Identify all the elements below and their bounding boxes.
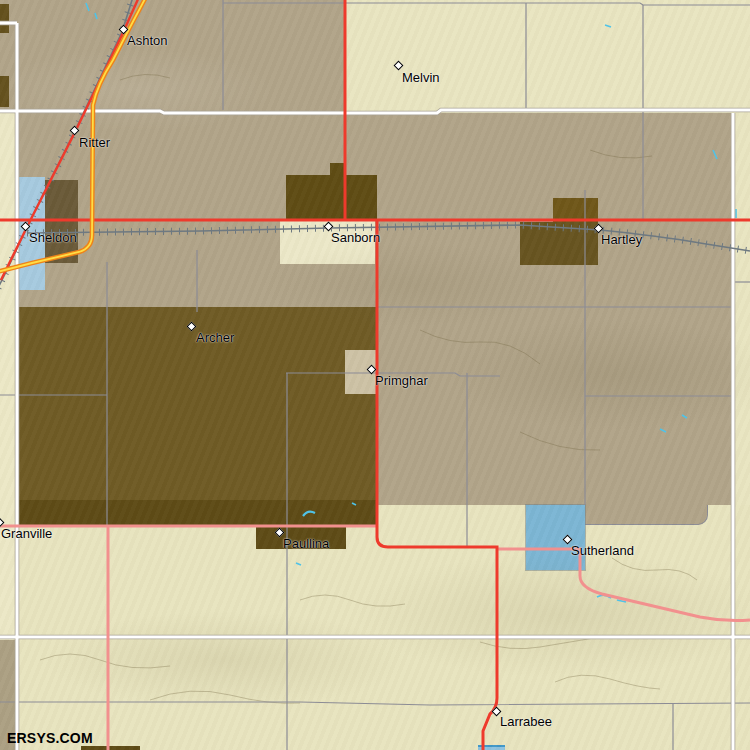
town-label-granville: Granville [1,527,52,541]
relief-line [120,74,170,80]
town-label-sheldon: Sheldon [29,231,77,245]
town-label-paullina: Paullina [283,537,329,551]
relief-line [40,654,170,668]
stream [682,415,687,418]
town-label-sanborn: Sanborn [331,231,380,245]
town-label-larrabee: Larrabee [500,715,552,729]
town-label-ritter: Ritter [79,136,110,150]
stream [86,3,89,11]
relief-line [300,595,405,606]
streams [86,3,736,602]
gray-road [0,702,750,705]
town-label-primghar: Primghar [375,374,428,388]
stream [660,429,666,432]
relief-line [555,675,660,689]
stream [713,150,717,159]
town-label-hartley: Hartley [601,233,642,247]
stream [605,25,611,27]
relief-lines [40,74,697,703]
town-label-sutherland: Sutherland [571,544,634,558]
gray-road [223,3,750,5]
stream [296,563,301,565]
town-label-melvin: Melvin [402,71,440,85]
map-canvas: Ashton Melvin Ritter Sheldon Sanborn Har… [0,0,750,750]
stream [303,512,315,516]
red-road-primghar-larrabee [377,220,497,750]
relief-line [420,330,540,364]
watermark-text: ERSYS.COM [7,730,93,746]
pink-road-sutherland [497,549,750,621]
stream [95,13,97,19]
town-label-ashton: Ashton [127,34,167,48]
relief-line [520,432,600,450]
town-label-archer: Archer [196,331,234,345]
stream [352,503,356,505]
relief-line [612,558,697,580]
